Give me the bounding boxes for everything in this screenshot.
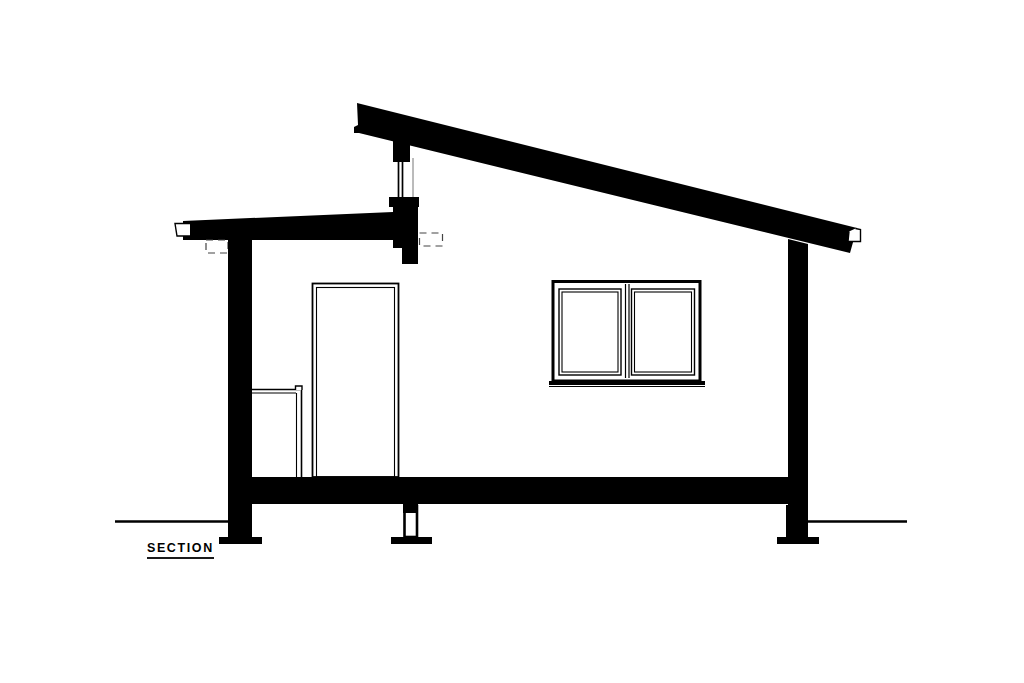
right-wall [788,239,808,505]
lower-entry-roof [175,212,393,253]
double-window [549,282,705,387]
section-drawing [0,0,1024,683]
clerestory-assembly [389,140,443,264]
window-frame [553,282,700,382]
left-footing [219,537,262,544]
right-footing [777,537,819,544]
lower-roof-slab [183,212,393,240]
foundation [219,504,819,544]
main-roof-beam [354,103,857,253]
main-shed-roof [354,103,861,253]
interior-door [313,284,399,478]
middle-footing [391,537,432,544]
section-drawing-canvas: SECTION [0,0,1024,683]
clerestory-drop-beam [402,248,418,264]
clerestory-dashed-beam [420,233,443,246]
counter-edge-nub [296,386,303,390]
left-wall [228,238,252,505]
cabinet-counter [252,386,302,477]
right-pier [786,505,808,537]
left-gutter-icon [175,224,190,237]
section-label: SECTION [147,541,214,559]
left-eave-dashed-beam [206,240,228,253]
window-sill [549,381,705,385]
middle-post-cap [403,504,418,513]
door-frame-outer [313,284,399,478]
floor-slab [228,477,808,504]
clerestory-post [393,205,418,248]
left-pier [228,504,252,537]
